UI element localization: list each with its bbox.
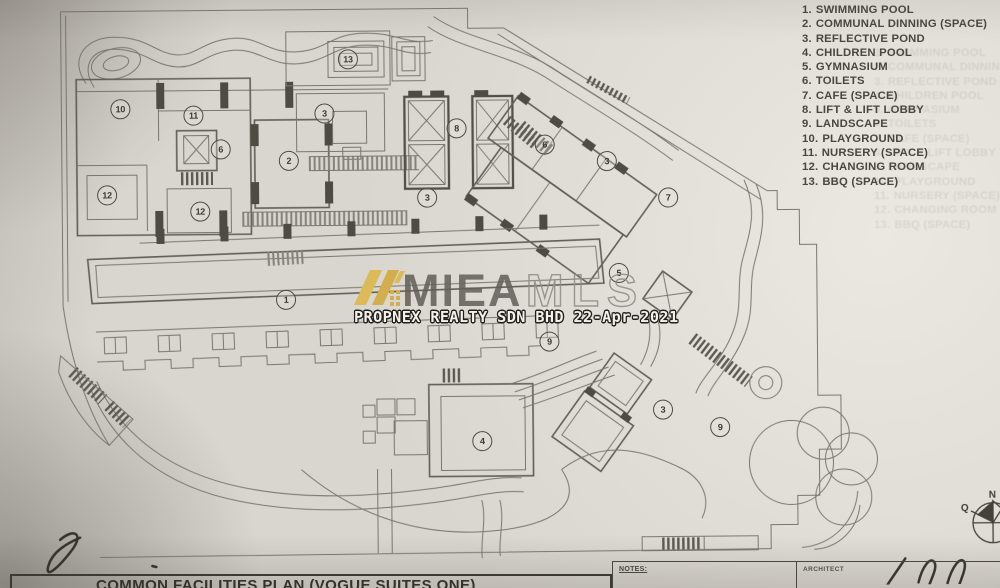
title-block-divider [796,562,797,588]
legend-item-label: COMMUNAL DINNING (SPACE) [888,61,1000,73]
legend-item-number: 6. [802,75,812,87]
legend-item-number: 8. [802,104,812,116]
legend-item-number: 9. [802,118,812,130]
legend-item: 3.REFLECTIVE POND [802,32,987,46]
legend-item: 5.GYMNASIUM [874,103,1000,117]
legend-item-label: CHILDREN POOL [888,90,984,102]
legend-item: 1.SWIMMING POOL [874,46,1000,60]
legend-item: 1.SWIMMING POOL [802,3,987,17]
plan-marker-10: 10 [110,99,130,119]
legend-item: 13.BBQ (SPACE) [874,218,1000,232]
legend-item-label: LIFT & LIFT LOBBY [888,147,996,159]
plan-marker-11: 11 [183,106,203,126]
legend-item: 12.CHANGING ROOM [874,203,1000,217]
title-block-right: NOTES: ARCHITECT [612,561,1000,588]
legend-item: 11.NURSERY (SPACE) [874,189,1000,203]
legend-item-number: 7. [802,90,812,102]
legend-item-label: CAFE (SPACE) [888,133,970,145]
plan-marker-6: 6 [535,135,555,155]
plan-marker-2: 2 [279,151,299,171]
architect-label: ARCHITECT [803,566,844,573]
legend-item-label: SWIMMING POOL [816,4,914,16]
plan-marker-3: 3 [653,399,673,419]
legend-item: 2.COMMUNAL DINNING (SPACE) [874,60,1000,74]
legend-item-label: SWIMMING POOL [888,47,986,59]
legend-item: 4.CHILDREN POOL [874,89,1000,103]
plan-marker-12: 12 [97,185,117,205]
legend-item-number: 6. [874,118,884,130]
plan-marker-9: 9 [539,331,559,351]
legend-item-number: 12. [802,161,818,173]
legend-item: 3.REFLECTIVE POND [874,75,1000,89]
legend-item-number: 4. [802,47,812,59]
plan-marker-8: 8 [446,118,466,138]
legend-item-label: REFLECTIVE POND [816,33,925,45]
plan-marker-1: 1 [276,290,296,310]
legend-item-number: 9. [874,161,884,173]
watermark: MIEA MLS PROPNEX REALTY SDN BHD 22-Apr-2… [348,257,688,333]
miea-logo-icon [354,270,405,306]
plan-marker-12: 12 [190,202,210,222]
legend-item-number: 5. [802,61,812,73]
legend-item-number: 4. [874,90,884,102]
legend-item-number: 1. [874,47,884,59]
plan-marker-6: 6 [211,139,231,159]
legend-item-number: 10. [874,176,890,188]
legend-item-number: 10. [802,133,818,145]
plan-marker-9: 9 [710,417,730,437]
legend-item-number: 13. [802,176,818,188]
legend-item-number: 3. [874,76,884,88]
legend-item-number: 2. [874,61,884,73]
plan-marker-3: 3 [597,151,617,171]
plan-marker-13: 13 [338,49,358,69]
legend-item-label: BBQ (SPACE) [894,219,970,231]
legend-item-label: LANDSCAPE [888,161,960,173]
legend-item-label: COMMUNAL DINNING (SPACE) [816,18,987,30]
title-block: COMMON FACILITIES PLAN (VOGUE SUITES ONE… [10,574,612,588]
plan-title: COMMON FACILITIES PLAN (VOGUE SUITES ONE… [96,578,610,588]
legend-item-number: 11. [802,147,818,159]
legend-item-number: 7. [874,133,884,145]
legend-item-number: 12. [874,204,890,216]
watermark-stamp-text: PROPNEX REALTY SDN BHD 22-Apr-2021 [354,309,678,325]
legend-item-number: 5. [874,104,884,116]
legend-item: 9.LANDSCAPE [874,160,1000,174]
plan-marker-3: 3 [314,103,334,123]
plan-marker-7: 7 [658,187,678,207]
legend-item-label: GYMNASIUM [888,104,960,116]
legend-item-label: TOILETS [888,118,937,130]
plan-marker-4: 4 [472,431,492,451]
legend-item-label: REFLECTIVE POND [888,76,997,88]
legend-item: 7.CAFE (SPACE) [874,132,1000,146]
plan-marker-3: 3 [417,188,437,208]
notes-label: NOTES: [619,566,647,573]
legend-item-number: 2. [802,18,812,30]
legend-item: 10.PLAYGROUND [874,175,1000,189]
scanned-floor-plan-photo: N Q 101161212231383637519394 1.SWIMMING … [0,0,1000,588]
legend-item-label: TOILETS [816,75,865,87]
legend-item-number: 3. [802,33,812,45]
legend-item: 8.LIFT & LIFT LOBBY [874,146,1000,160]
legend-ghost: 1.SWIMMING POOL2.COMMUNAL DINNING (SPACE… [874,46,1000,232]
legend-item: 6.TOILETS [874,117,1000,131]
legend-item-number: 8. [874,147,884,159]
legend-item-label: CHANGING ROOM [894,204,996,216]
legend-item-label: PLAYGROUND [894,176,975,188]
legend-item-number: 13. [874,219,890,231]
legend-item: 2.COMMUNAL DINNING (SPACE) [802,17,987,31]
legend-item-number: 11. [874,190,890,202]
legend-item-label: NURSERY (SPACE) [894,190,1000,202]
legend-item-number: 1. [802,4,812,16]
